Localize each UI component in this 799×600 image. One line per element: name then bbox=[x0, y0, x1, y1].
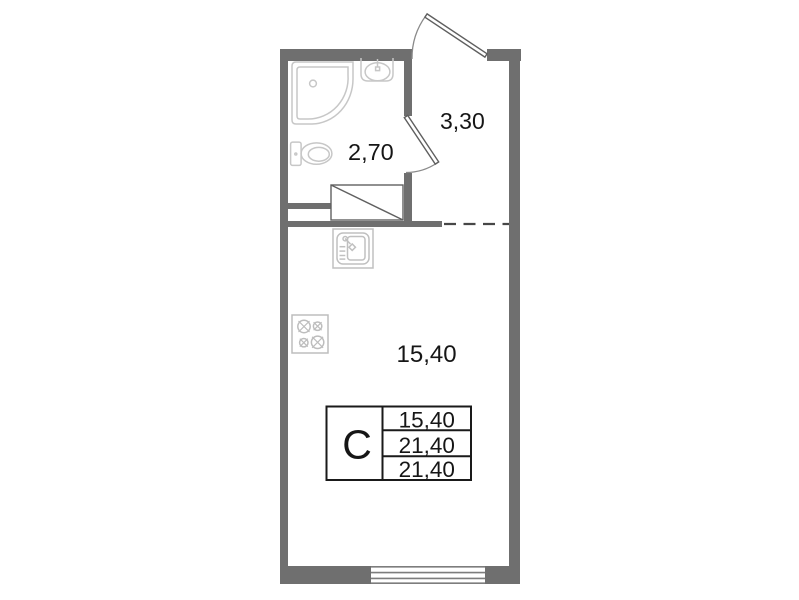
svg-text:15,40: 15,40 bbox=[397, 341, 457, 368]
svg-text:21,40: 21,40 bbox=[399, 457, 455, 482]
svg-text:3,30: 3,30 bbox=[440, 108, 485, 134]
svg-text:2,70: 2,70 bbox=[348, 139, 394, 165]
svg-text:15,40: 15,40 bbox=[399, 408, 455, 433]
svg-text:21,40: 21,40 bbox=[399, 433, 455, 458]
svg-text:С: С bbox=[342, 422, 372, 468]
